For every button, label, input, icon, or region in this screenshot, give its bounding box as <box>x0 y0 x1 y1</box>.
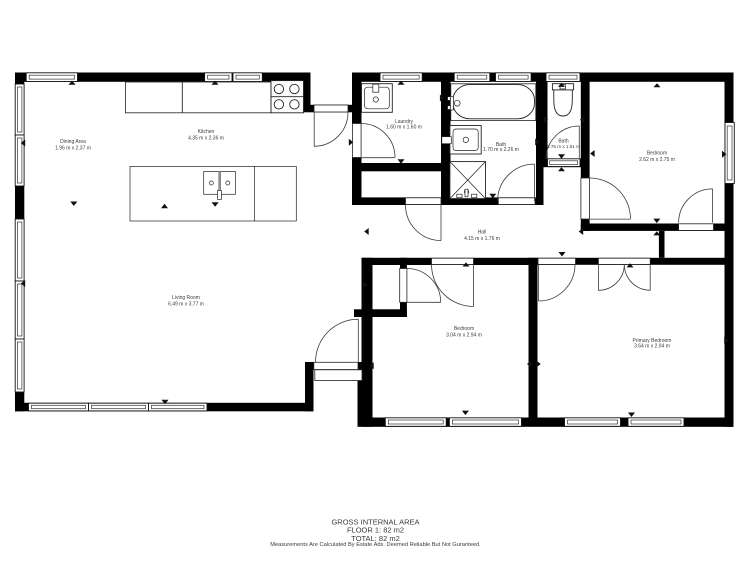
svg-text:4.35 m x 2.36 m: 4.35 m x 2.36 m <box>188 135 224 141</box>
svg-text:0.75 m x 1.51 m: 0.75 m x 1.51 m <box>547 144 580 149</box>
svg-text:6.49 m x 3.77 m: 6.49 m x 3.77 m <box>168 302 204 308</box>
svg-text:1.60 m x 1.60 m: 1.60 m x 1.60 m <box>386 125 422 131</box>
svg-text:1.70 m x 2.26 m: 1.70 m x 2.26 m <box>483 147 519 153</box>
svg-text:Hall: Hall <box>478 229 487 235</box>
svg-text:4.15 m x 1.76 m: 4.15 m x 1.76 m <box>464 236 500 242</box>
svg-text:3.64 m x 2.94 m: 3.64 m x 2.94 m <box>634 343 670 349</box>
svg-text:Kitchen: Kitchen <box>198 129 215 135</box>
svg-text:Measurements Are Calculated By: Measurements Are Calculated By Estate Ad… <box>270 542 481 548</box>
svg-text:3.04 m x 2.94 m: 3.04 m x 2.94 m <box>446 333 482 339</box>
svg-text:Bedroom: Bedroom <box>454 326 474 332</box>
svg-text:Living Room: Living Room <box>172 295 200 301</box>
svg-text:1.96 m x 2.37 m: 1.96 m x 2.37 m <box>55 146 91 152</box>
svg-text:Dining Area: Dining Area <box>60 139 86 145</box>
svg-text:2.62 m x 2.75 m: 2.62 m x 2.75 m <box>639 157 675 163</box>
svg-text:Bedroom: Bedroom <box>647 151 667 157</box>
